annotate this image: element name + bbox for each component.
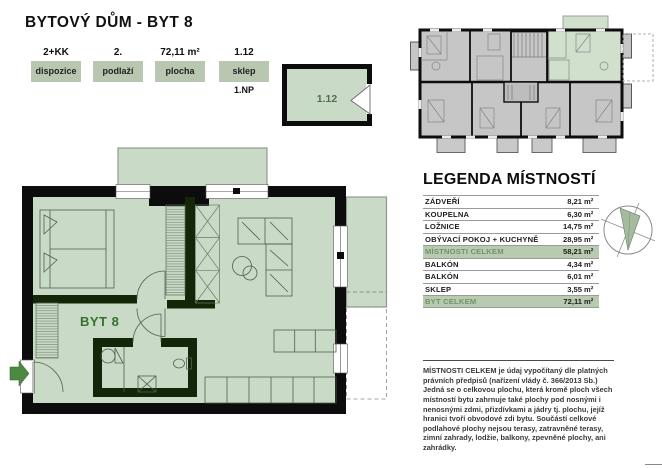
plocha-label: plocha [155, 61, 205, 82]
room-name: LOŽNICE [425, 222, 555, 231]
podlazi-note [93, 85, 143, 95]
room-name: BALKÓN [425, 272, 555, 281]
apartment-floor-plan: BYT 8 [0, 128, 430, 468]
room-area: 14,75 [555, 222, 582, 231]
page-title: BYTOVÝ DŮM - BYT 8 [25, 14, 193, 32]
balcony-door-window [334, 226, 348, 287]
room-area: 58,21 [555, 247, 582, 256]
room-name: BALKÓN [425, 260, 555, 269]
dispozice-value: 2+KK [31, 47, 81, 58]
plocha-note [155, 85, 205, 95]
room-unit: m² [584, 272, 596, 281]
legend-title: LEGENDA MÍSTNOSTÍ [423, 171, 599, 189]
room-unit: m² [584, 235, 596, 244]
outer-wall-thickening [149, 197, 209, 206]
legend-row: SKLEP 3,55 m² [423, 283, 599, 296]
wardrobe-hatch-hall [36, 303, 58, 358]
room-unit: m² [584, 247, 596, 256]
disclaimer-section: MÍSTNOSTI CELKEM je údaj vypočítaný dle … [423, 360, 615, 453]
divider-line [423, 360, 614, 361]
room-name: SKLEP [425, 285, 555, 294]
living-room-window-top [206, 185, 268, 199]
legend-row: KOUPELNA 6,30 m² [423, 208, 599, 221]
bedroom-window [116, 185, 150, 199]
plocha-value: 72,11 m² [155, 47, 205, 58]
info-box-sklep: 1.12 sklep 1.NP [219, 47, 269, 95]
room-area: 28,95 [555, 235, 582, 244]
wardrobe-hatch-bedroom [166, 205, 185, 295]
legend-row: BALKÓN 6,01 m² [423, 270, 599, 283]
legend-row: BALKÓN 4,34 m² [423, 258, 599, 271]
info-box-dispozice: 2+KK dispozice [31, 47, 81, 95]
room-area: 72,11 [555, 297, 582, 306]
floorplan-page: BYTOVÝ DŮM - BYT 8 2+KK dispozice 2. pod… [0, 0, 662, 468]
room-unit: m² [584, 297, 596, 306]
room-name: KOUPELNA [425, 210, 555, 219]
podlazi-value: 2. [93, 47, 143, 58]
podlazi-label: podlaží [93, 61, 143, 82]
dispozice-label: dispozice [31, 61, 81, 82]
room-unit: m² [584, 197, 596, 206]
legend-section: LEGENDA MÍSTNOSTÍ ZÁDVEŘÍ 8,21 m² KOUPEL… [423, 171, 599, 308]
dispozice-note [31, 85, 81, 95]
sklep-label: sklep [219, 61, 269, 82]
legend-row: ZÁDVEŘÍ 8,21 m² [423, 195, 599, 208]
legend-row-total-apartment: BYT CELKEM 72,11 m² [423, 295, 599, 308]
room-unit: m² [584, 210, 596, 219]
legend-row-total-rooms: MÍSTNOSTI CELKEM 58,21 m² [423, 245, 599, 258]
room-unit: m² [584, 285, 596, 294]
room-name: MÍSTNOSTI CELKEM [425, 247, 555, 256]
room-unit: m² [584, 222, 596, 231]
storage-room-number: 1.12 [317, 93, 338, 105]
bathroom-door-gap [133, 337, 161, 348]
storage-unit-plan: 1.12 [275, 55, 377, 133]
sklep-note: 1.NP [219, 85, 269, 95]
legend-row: LOŽNICE 14,75 m² [423, 220, 599, 233]
room-name: BYT CELKEM [425, 297, 555, 306]
info-box-plocha: 72,11 m² plocha [155, 47, 205, 95]
room-area: 4,34 [555, 260, 582, 269]
room-area: 8,21 [555, 197, 582, 206]
disclaimer-text: MÍSTNOSTI CELKEM je údaj vypočítaný dle … [423, 366, 615, 453]
room-area: 6,01 [555, 272, 582, 281]
top-balcony [118, 148, 267, 187]
overview-highlighted-unit [548, 32, 621, 83]
legend-row: OBÝVACÍ POKOJ + KUCHYNĚ 28,95 m² [423, 233, 599, 246]
apartment-label: BYT 8 [80, 314, 119, 329]
room-area: 3,55 [555, 285, 582, 294]
page-corner-mark [645, 464, 662, 465]
room-name: OBÝVACÍ POKOJ + KUCHYNĚ [425, 235, 555, 244]
building-overview-plan [405, 0, 662, 170]
room-area: 6,30 [555, 210, 582, 219]
info-box-podlazi: 2. podlaží [93, 47, 143, 95]
sklep-value: 1.12 [219, 47, 269, 58]
right-balcony [347, 197, 387, 307]
dashed-terrace-outline [347, 307, 387, 399]
room-name: ZÁDVEŘÍ [425, 197, 555, 206]
room-unit: m² [584, 260, 596, 269]
north-compass-icon [597, 198, 659, 262]
